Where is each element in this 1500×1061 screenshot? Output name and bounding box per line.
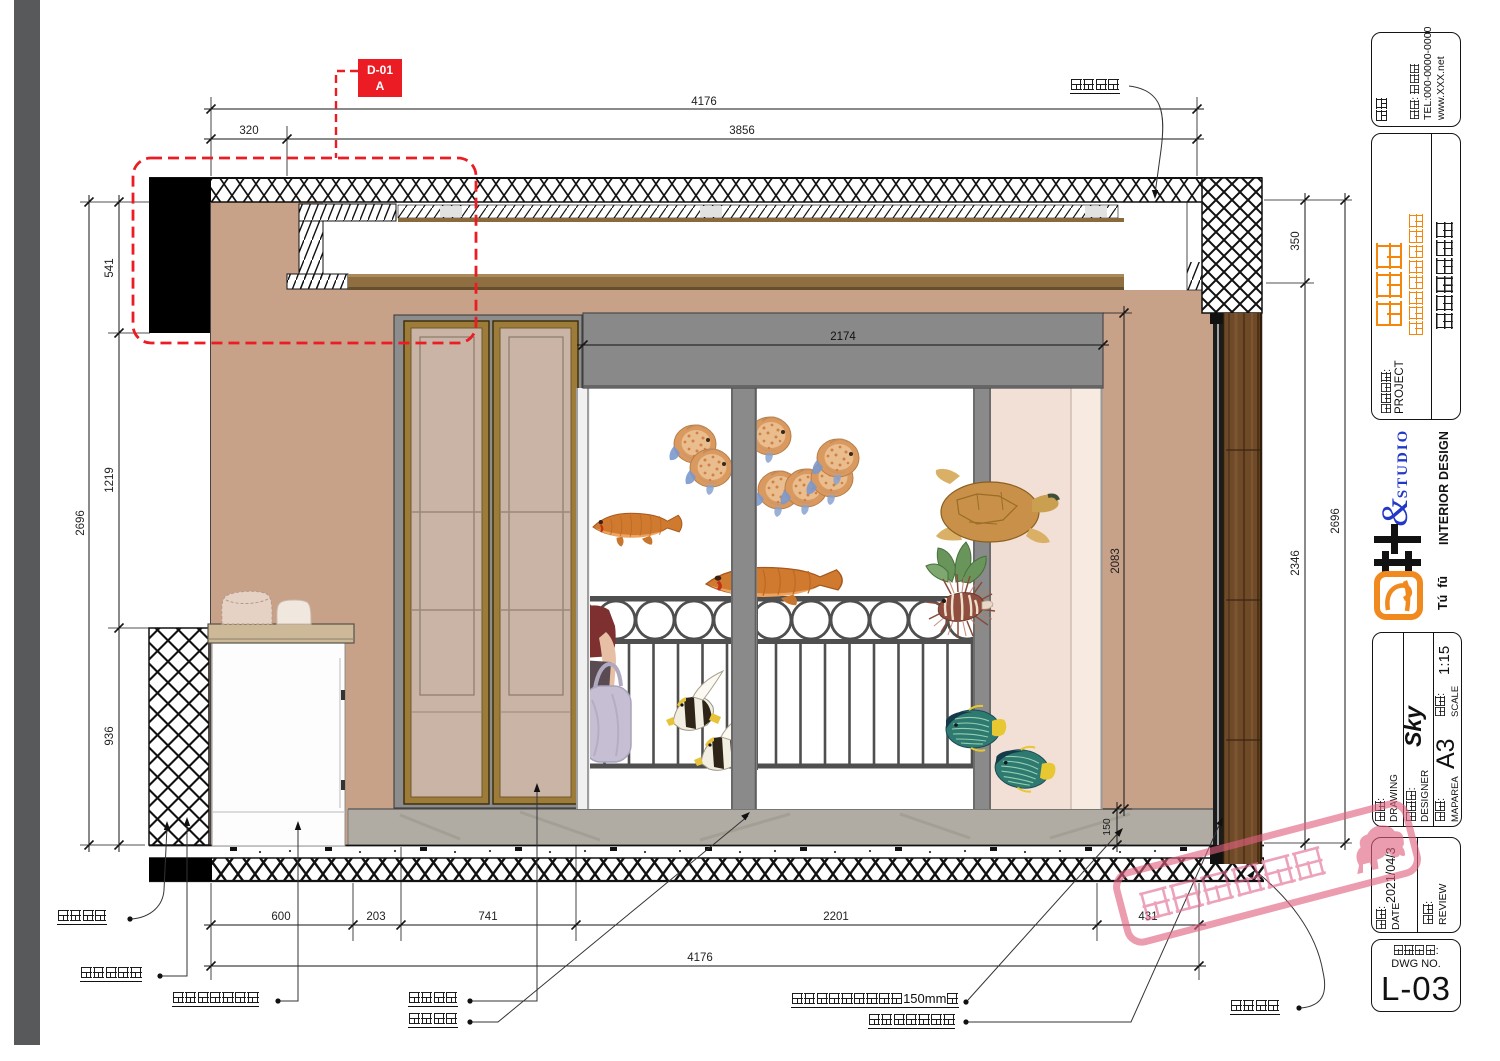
svg-text:4176: 4176 [687,952,713,964]
svg-text:2083: 2083 [1110,548,1122,574]
svg-text:1219: 1219 [104,467,116,493]
svg-text:4176: 4176 [691,96,717,108]
svg-text:320: 320 [239,125,258,137]
svg-text:2696: 2696 [75,510,87,536]
svg-text:600: 600 [271,911,290,923]
svg-text:150: 150 [1101,818,1113,836]
svg-text:203: 203 [366,911,385,923]
svg-text:3856: 3856 [729,125,755,137]
svg-text:2696: 2696 [1330,508,1342,534]
svg-text:741: 741 [478,911,497,923]
svg-text:541: 541 [104,258,116,277]
svg-text:2174: 2174 [830,331,856,343]
svg-text:A: A [376,79,385,93]
svg-text:350: 350 [1290,231,1302,250]
svg-text:936: 936 [104,726,116,745]
svg-text:2346: 2346 [1290,550,1302,576]
svg-text:D-01: D-01 [367,63,393,77]
svg-text:2201: 2201 [823,911,849,923]
